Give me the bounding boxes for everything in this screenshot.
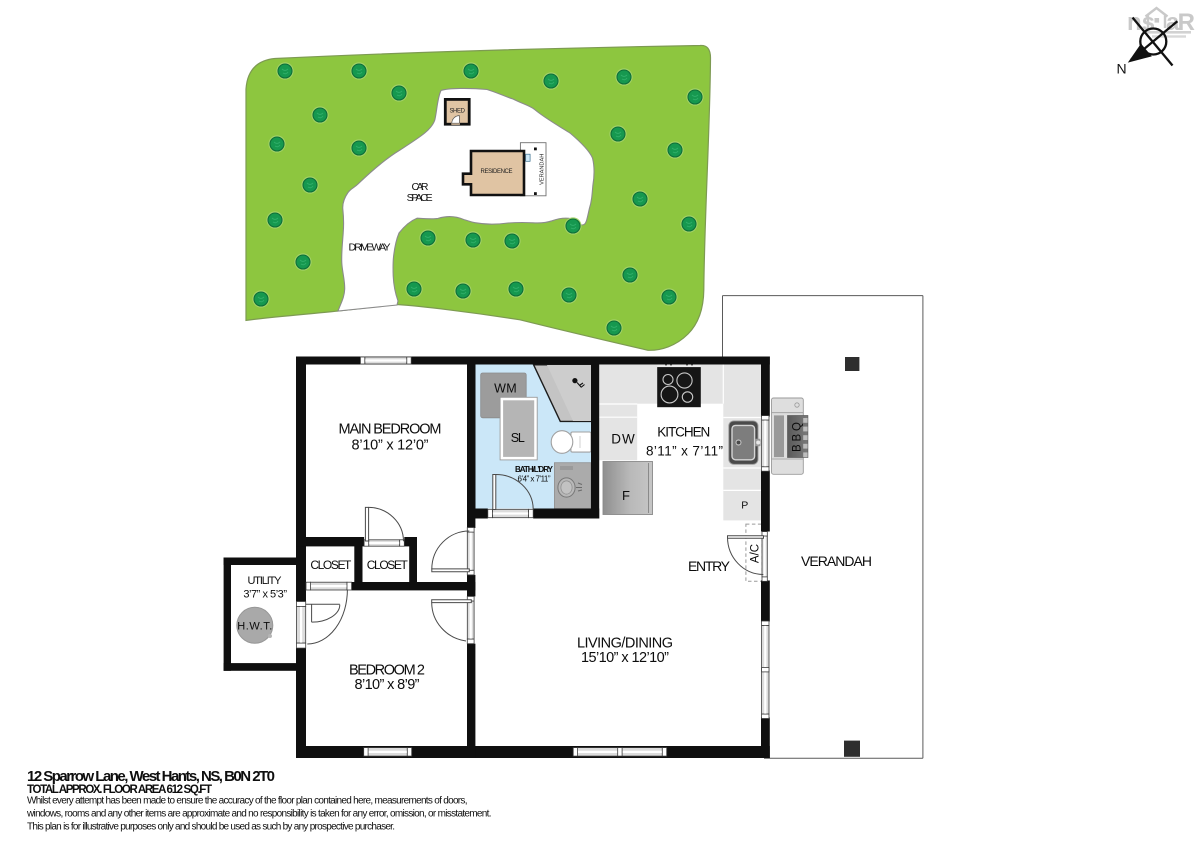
svg-text:VERANDAH: VERANDAH <box>801 553 872 569</box>
svg-text:BBQ: BBQ <box>792 422 804 452</box>
svg-text:P: P <box>741 500 748 512</box>
svg-text:RESIDENCE: RESIDENCE <box>481 169 513 175</box>
svg-text:WM: WM <box>494 382 517 396</box>
svg-text:6’4” x 7’11”: 6’4” x 7’11” <box>518 475 551 484</box>
svg-text:A/C: A/C <box>750 544 762 563</box>
svg-text:BATH/L’DRY: BATH/L’DRY <box>515 465 554 474</box>
svg-text:windows, rooms and any other i: windows, rooms and any other items are a… <box>26 809 492 820</box>
svg-text:VERANDAH: VERANDAH <box>540 154 546 185</box>
svg-text:SPACE: SPACE <box>407 192 433 204</box>
svg-text:12 Sparrow Lane, West Hants, N: 12 Sparrow Lane, West Hants, NS, B0N 2T0 <box>27 768 275 785</box>
svg-text:DW: DW <box>611 431 635 446</box>
svg-text:This plan is for illustrative: This plan is for illustrative purposes o… <box>27 822 395 833</box>
svg-text:UTILITY: UTILITY <box>248 575 283 587</box>
svg-text:CLOSET: CLOSET <box>367 558 409 572</box>
svg-text:MAIN BEDROOM: MAIN BEDROOM <box>339 422 442 438</box>
svg-text:N: N <box>1116 61 1126 77</box>
svg-text:DRIVEWAY: DRIVEWAY <box>349 241 391 253</box>
svg-text:CLOSET: CLOSET <box>310 558 352 572</box>
svg-text:SHED: SHED <box>449 109 465 115</box>
svg-text:3’7” x 5’3”: 3’7” x 5’3” <box>243 589 287 601</box>
svg-text:H.W.T.: H.W.T. <box>237 620 272 632</box>
svg-text:KITCHEN: KITCHEN <box>657 425 710 440</box>
svg-text:TOTAL APPROX. FLOOR AREA 612 S: TOTAL APPROX. FLOOR AREA 612 SQ.FT <box>27 784 212 796</box>
svg-text:ENTRY: ENTRY <box>688 558 731 574</box>
svg-text:8’11” x 7’11”: 8’11” x 7’11” <box>646 444 723 459</box>
svg-text:SL: SL <box>511 431 525 445</box>
svg-text:F: F <box>622 488 630 503</box>
svg-text:8’10” x 8’9”: 8’10” x 8’9” <box>355 677 420 693</box>
svg-text:8’10” x 12’0”: 8’10” x 12’0” <box>352 438 429 454</box>
svg-text:15’10” x 12’10”: 15’10” x 12’10” <box>581 650 669 666</box>
svg-text:Whilst every attempt has been: Whilst every attempt has been made to en… <box>27 796 467 807</box>
